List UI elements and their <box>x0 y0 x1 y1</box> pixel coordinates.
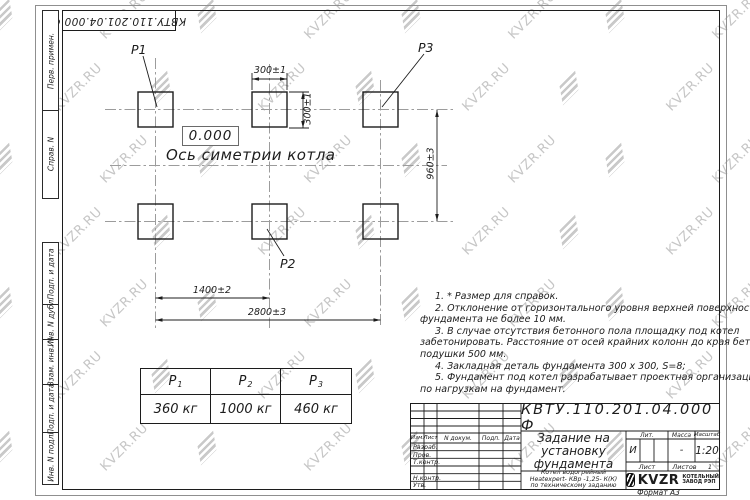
lit-value: И <box>626 439 640 462</box>
company-logo: KVZR КОТЕЛЬНЫЙ ЗАВОД РЭП <box>626 471 719 489</box>
col-header-dokum: N докум. <box>437 433 479 443</box>
note-line: 2. Отклонение от горизонтального уровня … <box>420 303 720 315</box>
format-label: Формат А3 <box>596 488 721 497</box>
point-label-p3: P3 <box>418 40 434 55</box>
elevation-mark: 0.000 <box>182 126 239 146</box>
centerlines <box>105 58 453 328</box>
notes-block: 1. * Размер для справок. 2. Отклонение о… <box>420 291 720 395</box>
load-table-header: P1 <box>141 369 211 395</box>
dim-col-spacing-1400: 1400±2 <box>182 285 242 296</box>
p-symbol: P <box>169 374 177 389</box>
masshtab-header: Масштаб <box>695 431 719 439</box>
listov-value: 1 <box>701 462 719 471</box>
note-line: 5. Фундамент под котел разрабатывает про… <box>420 372 720 384</box>
p-symbol: P <box>309 374 317 389</box>
row-label-razrab: Разраб. <box>413 444 438 451</box>
listov-label: Листов <box>668 462 701 471</box>
titleblock-doc-number: КВТУ.110.201.04.000 Ф <box>521 404 719 431</box>
titleblock-subtitle: Котел водогрейный Heatexpert- КВр -1,25-… <box>521 471 626 489</box>
leader-p1 <box>143 56 157 107</box>
title-block: КВТУ.110.201.04.000 Ф Изм. Лист N докум.… <box>410 403 719 489</box>
note-line: 3. В случае отсутствия бетонного пола пл… <box>420 326 720 338</box>
logo-sub-line: ЗАВОД РЭП <box>682 480 719 486</box>
title-line: Задание на <box>537 432 610 445</box>
dim-total-2800: 2800±3 <box>237 307 297 318</box>
col-header-podp: Подп. <box>479 433 503 443</box>
load-table: P1 P2 P3 360 кг 1000 кг 460 кг <box>140 368 352 424</box>
symmetry-axis-label: Ось симетрии котла <box>166 146 335 164</box>
dim-height-300: 300±1 <box>303 84 314 134</box>
kvzr-logo-text: KVZR <box>638 473 680 488</box>
drawing-sheet: KVZR.RUKVZR.RUKVZR.RUKVZR.RUKVZR.RUKVZR.… <box>0 0 750 500</box>
note-line: 1. * Размер для справок. <box>420 291 720 303</box>
point-label-p1: P1 <box>131 42 147 57</box>
kvzr-logo-icon <box>626 473 635 487</box>
massa-value: - <box>668 439 695 462</box>
massa-header: Масса <box>668 431 695 439</box>
col-header-data: Дата <box>503 433 521 443</box>
note-line: забетонировать. Расстояние от осей крайн… <box>420 337 720 349</box>
list-label: Лист <box>626 462 668 471</box>
point-label-p2: P2 <box>280 256 296 271</box>
load-table-header: P2 <box>211 369 281 395</box>
p-subscript: 3 <box>318 380 323 389</box>
note-line: фундамента не более 10 мм. <box>420 314 720 326</box>
row-label-utv: Утв. <box>413 482 426 489</box>
kvzr-logo-subtext: КОТЕЛЬНЫЙ ЗАВОД РЭП <box>682 475 719 486</box>
load-value: 360 кг <box>141 395 211 423</box>
row-label-prov: Пров. <box>413 452 431 459</box>
masshtab-value: 1:20 <box>695 439 719 462</box>
row-label-tkontr: Т.контр. <box>413 459 440 466</box>
load-table-header: P3 <box>281 369 351 395</box>
note-line: подушки 500 мм. <box>420 349 720 361</box>
titleblock-title: Задание на установку фундамента <box>521 431 626 471</box>
load-table-value-row: 360 кг 1000 кг 460 кг <box>141 395 351 423</box>
row-label-nkontr: Н.контр. <box>413 475 441 482</box>
note-line: 4. Закладная деталь фундамента 300 х 300… <box>420 361 720 373</box>
lit-header: Лит. <box>626 431 668 439</box>
dim-row-spacing-960: 960±3 <box>426 138 437 190</box>
load-value: 1000 кг <box>211 395 281 423</box>
p-subscript: 1 <box>177 380 182 389</box>
title-line: установку <box>541 445 606 458</box>
load-table-header-row: P1 P2 P3 <box>141 369 351 395</box>
load-value: 460 кг <box>281 395 351 423</box>
note-line: по нагрузкам на фундамент. <box>420 384 720 396</box>
sheet-content: КВТУ.110.201.04.000 Ф Перв. примен. Спра… <box>0 0 750 500</box>
dim-width-300: 300±1 <box>240 65 300 76</box>
p-symbol: P <box>239 374 247 389</box>
p-subscript: 2 <box>247 380 252 389</box>
leader-p3 <box>382 54 424 107</box>
col-header-list: Лист <box>424 433 437 443</box>
dimension-lines <box>143 54 437 320</box>
